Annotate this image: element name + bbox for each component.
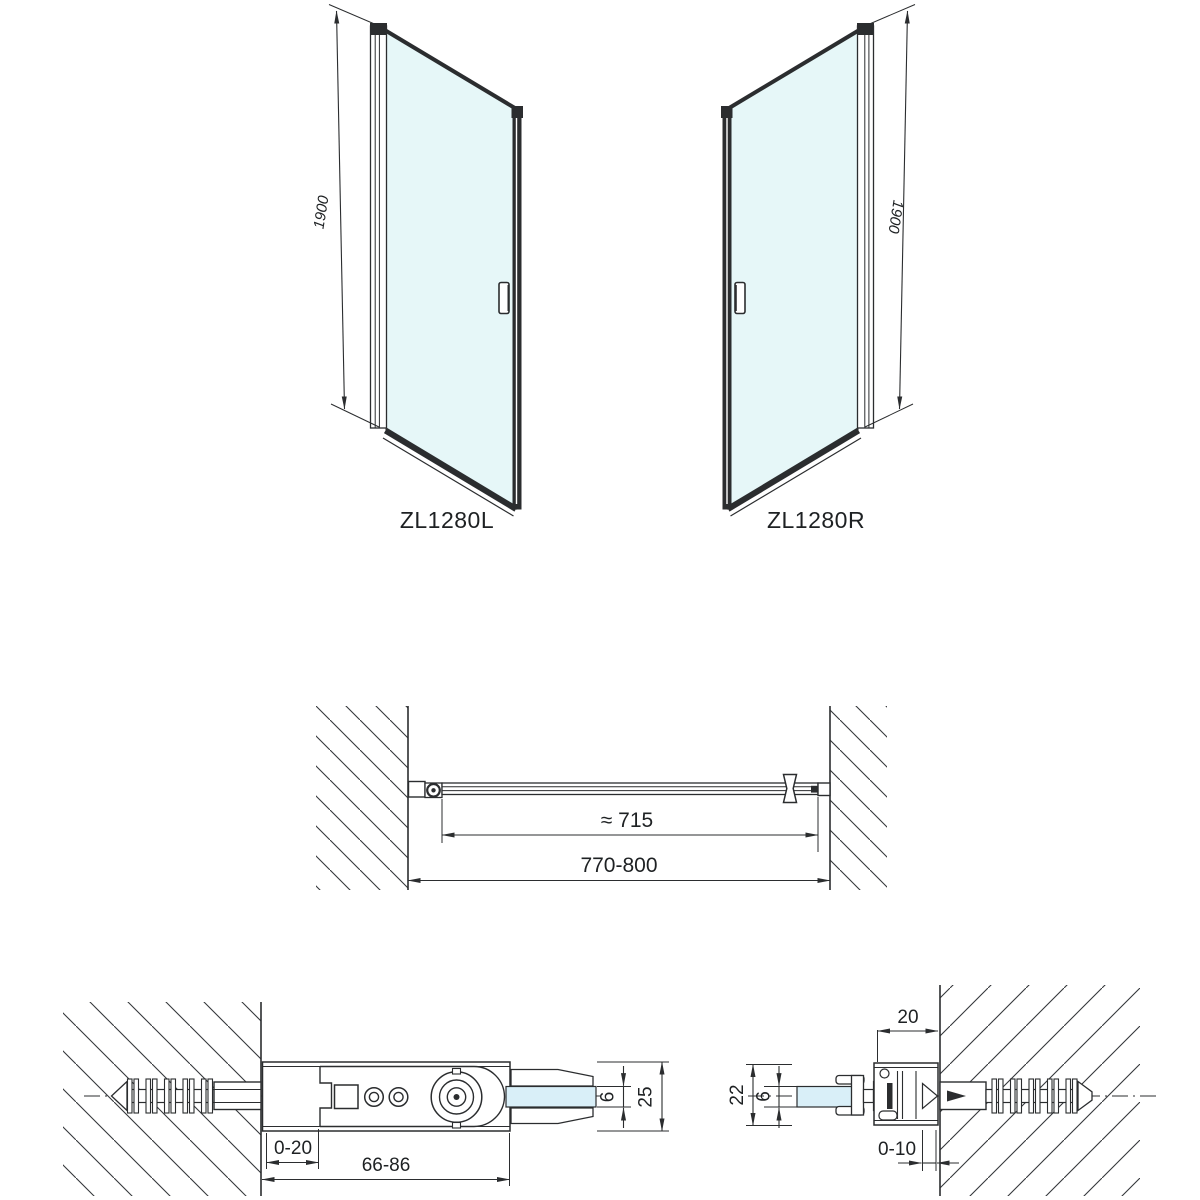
installation-width-label: 770-800 [580, 854, 657, 877]
technical-drawing-page: 1900 ZL1280L 1900 [0, 0, 1200, 1200]
glass-thickness-dimension: 6 [754, 1066, 800, 1128]
installation-width-dimension: 770-800 [408, 854, 830, 881]
profile-depth-label: 25 [636, 1086, 657, 1107]
glass-end-fitting [811, 786, 818, 793]
glass-thickness-label: 6 [598, 1092, 619, 1103]
wall-gap-label: 0-20 [274, 1138, 312, 1159]
hinge-bracket-detail-view: 0-20 66-86 6 25 [63, 1002, 669, 1196]
profile-hook-top [880, 1069, 889, 1078]
plan-view: ≈ 715 770-800 [316, 706, 887, 890]
shower-door-drawing: 1900 ZL1280L 1900 [0, 0, 1200, 1200]
door-closing-profile [721, 106, 733, 510]
height-dim-label: 1900 [311, 194, 333, 230]
glass-clamp [506, 1070, 596, 1124]
adjustable-bracket [263, 1062, 511, 1131]
wall-profile-detail-view: 20 22 6 0-10 [727, 985, 1156, 1196]
door-handle [735, 283, 745, 314]
glass-panel [386, 31, 516, 509]
door-closing-profile [512, 106, 524, 510]
wall-hatch-left [316, 706, 408, 890]
adjustment-block [335, 1085, 359, 1109]
glass-section-bar [442, 783, 818, 795]
glass-width-label: ≈ 715 [601, 809, 653, 832]
wall-hatch-right [830, 706, 887, 890]
profile-depth-label: 22 [727, 1084, 748, 1105]
glass-thickness-label: 6 [754, 1091, 775, 1102]
right-door-view: 1900 ZL1280R [721, 5, 915, 534]
profile-width-dimension: 20 [878, 1007, 939, 1062]
wall-bracket [409, 782, 426, 798]
bracket-length-label: 66-86 [362, 1155, 411, 1176]
glass-panel [728, 31, 858, 509]
door-handle [499, 283, 509, 314]
adjustment-label: 0-10 [878, 1139, 916, 1160]
hinge-profile [857, 23, 874, 428]
hinge-pivot [425, 783, 442, 798]
glass-thickness-dimension: 6 [597, 1066, 631, 1128]
wall-profile-body [874, 1063, 938, 1125]
model-label-left: ZL1280L [400, 507, 494, 533]
glass-section [797, 1087, 852, 1108]
adjustment-screw [887, 1083, 893, 1109]
left-door-view: 1900 ZL1280L [311, 5, 523, 534]
profile-width-label: 20 [897, 1007, 918, 1028]
hinge-profile [370, 23, 387, 428]
wall-gap-dimension: 0-20 [267, 1129, 319, 1169]
glass-width-dimension: ≈ 715 [442, 797, 818, 852]
model-label-right: ZL1280R [767, 507, 865, 533]
profile-hook-bottom [879, 1111, 897, 1120]
glass-section [506, 1087, 596, 1108]
wall-profile [818, 783, 830, 796]
